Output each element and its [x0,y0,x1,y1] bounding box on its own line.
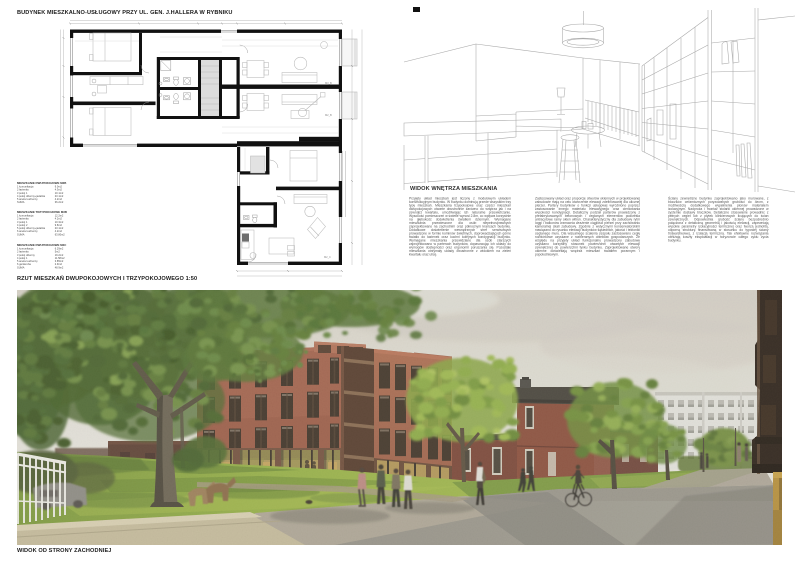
svg-text:M3_B: M3_B [325,81,332,85]
svg-text:M2_B: M2_B [325,113,332,117]
